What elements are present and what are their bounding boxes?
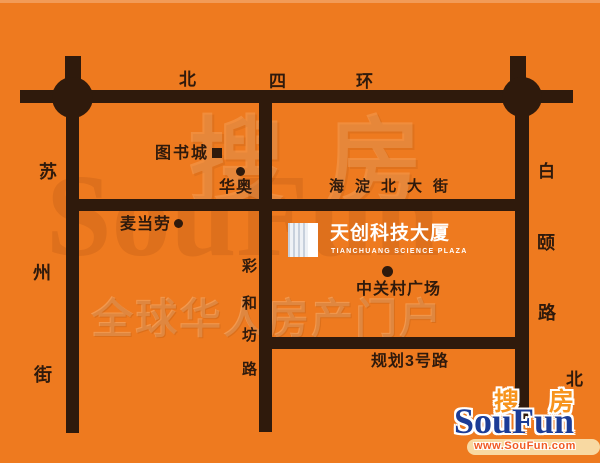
label-suzhou-char-su: 苏	[39, 163, 57, 181]
label-book-city: 图书城	[155, 146, 209, 162]
road-suzhou-street	[66, 97, 79, 433]
building-subtitle: TIANCHUANG SCIENCE PLAZA	[331, 248, 468, 255]
label-baiyi-char-lu: 路	[538, 304, 556, 322]
soufun-logo-url: www.SouFun.com	[474, 441, 576, 452]
label-caihefang-char-cai: 彩	[242, 259, 257, 274]
label-caihefang-char-fang: 坊	[242, 328, 257, 343]
map-canvas: 搜房 SouFun 全球华人房产门户 北 四 环 苏 州 街 白 颐 路 北 海…	[0, 0, 600, 463]
road-baiyi-road	[515, 97, 529, 420]
road-caihefang-road	[259, 100, 272, 432]
label-caihefang-char-lu: 路	[242, 362, 257, 377]
label-suzhou-char-zhou: 州	[33, 264, 51, 282]
label-baiyi-char-bai: 白	[538, 163, 555, 180]
label-ring-char-si: 四	[269, 73, 286, 90]
label-suzhou-char-jie: 街	[34, 366, 52, 384]
label-planned-road-3: 规划3号路	[371, 354, 449, 370]
label-zhongguancun-plaza: 中关村广场	[356, 282, 441, 298]
label-ring-char-huan: 环	[356, 73, 373, 90]
road-planned-road-3	[259, 337, 529, 349]
huaao-dot-icon	[236, 167, 245, 176]
label-baiyi-char-yi: 颐	[537, 234, 555, 252]
label-mcdonalds: 麦当劳	[120, 217, 171, 233]
label-north-direction: 北	[566, 371, 583, 388]
book-city-square-marker-icon	[212, 148, 222, 158]
label-ring-char-bei: 北	[179, 71, 196, 88]
road-haidian-north-street	[66, 199, 529, 211]
zhongguancun-plaza-dot-icon	[382, 266, 393, 277]
label-haidian-north-street: 海淀北大街	[329, 179, 459, 194]
building-logo-icon	[288, 223, 318, 257]
label-caihefang-char-he: 和	[242, 296, 257, 311]
road-north-fourth-ring	[20, 90, 573, 103]
top-edge-highlight	[0, 0, 600, 3]
label-huaao: 华奥	[219, 180, 253, 196]
mcdonalds-dot-icon	[174, 219, 183, 228]
building-name: 天创科技大厦	[330, 224, 450, 243]
soufun-logo-wordmark: SouFun	[454, 403, 574, 439]
